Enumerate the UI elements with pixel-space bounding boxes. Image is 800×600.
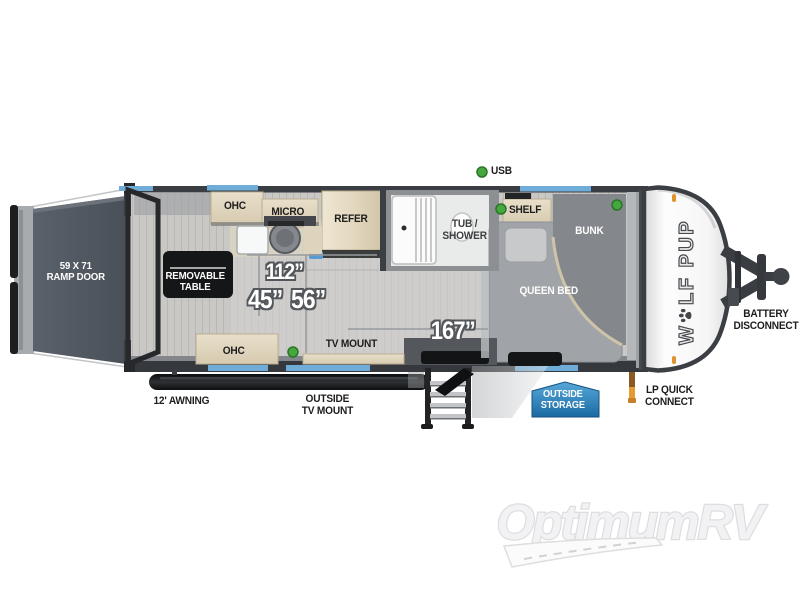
- svg-text:W: W: [676, 324, 698, 345]
- svg-text:LF PUP: LF PUP: [676, 219, 698, 305]
